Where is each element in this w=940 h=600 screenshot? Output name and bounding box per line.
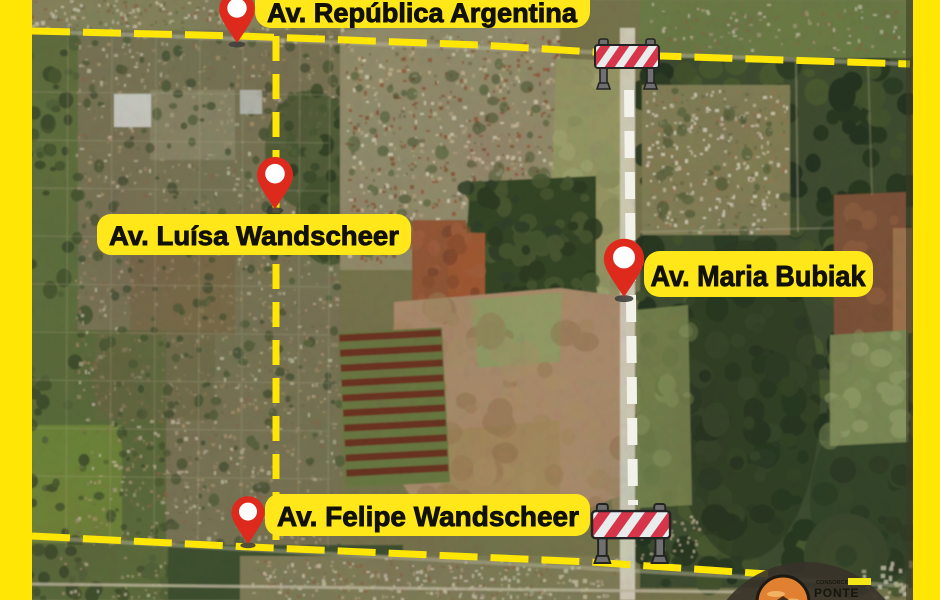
svg-text:PONTE: PONTE: [814, 586, 859, 600]
svg-text:Av. Felipe Wandscheer: Av. Felipe Wandscheer: [277, 501, 579, 532]
svg-text:Av. Luísa Wandscheer: Av. Luísa Wandscheer: [109, 221, 399, 251]
svg-text:Av. República Argentina: Av. República Argentina: [267, 0, 578, 28]
svg-text:Av. Maria Bubiak: Av. Maria Bubiak: [651, 261, 867, 293]
